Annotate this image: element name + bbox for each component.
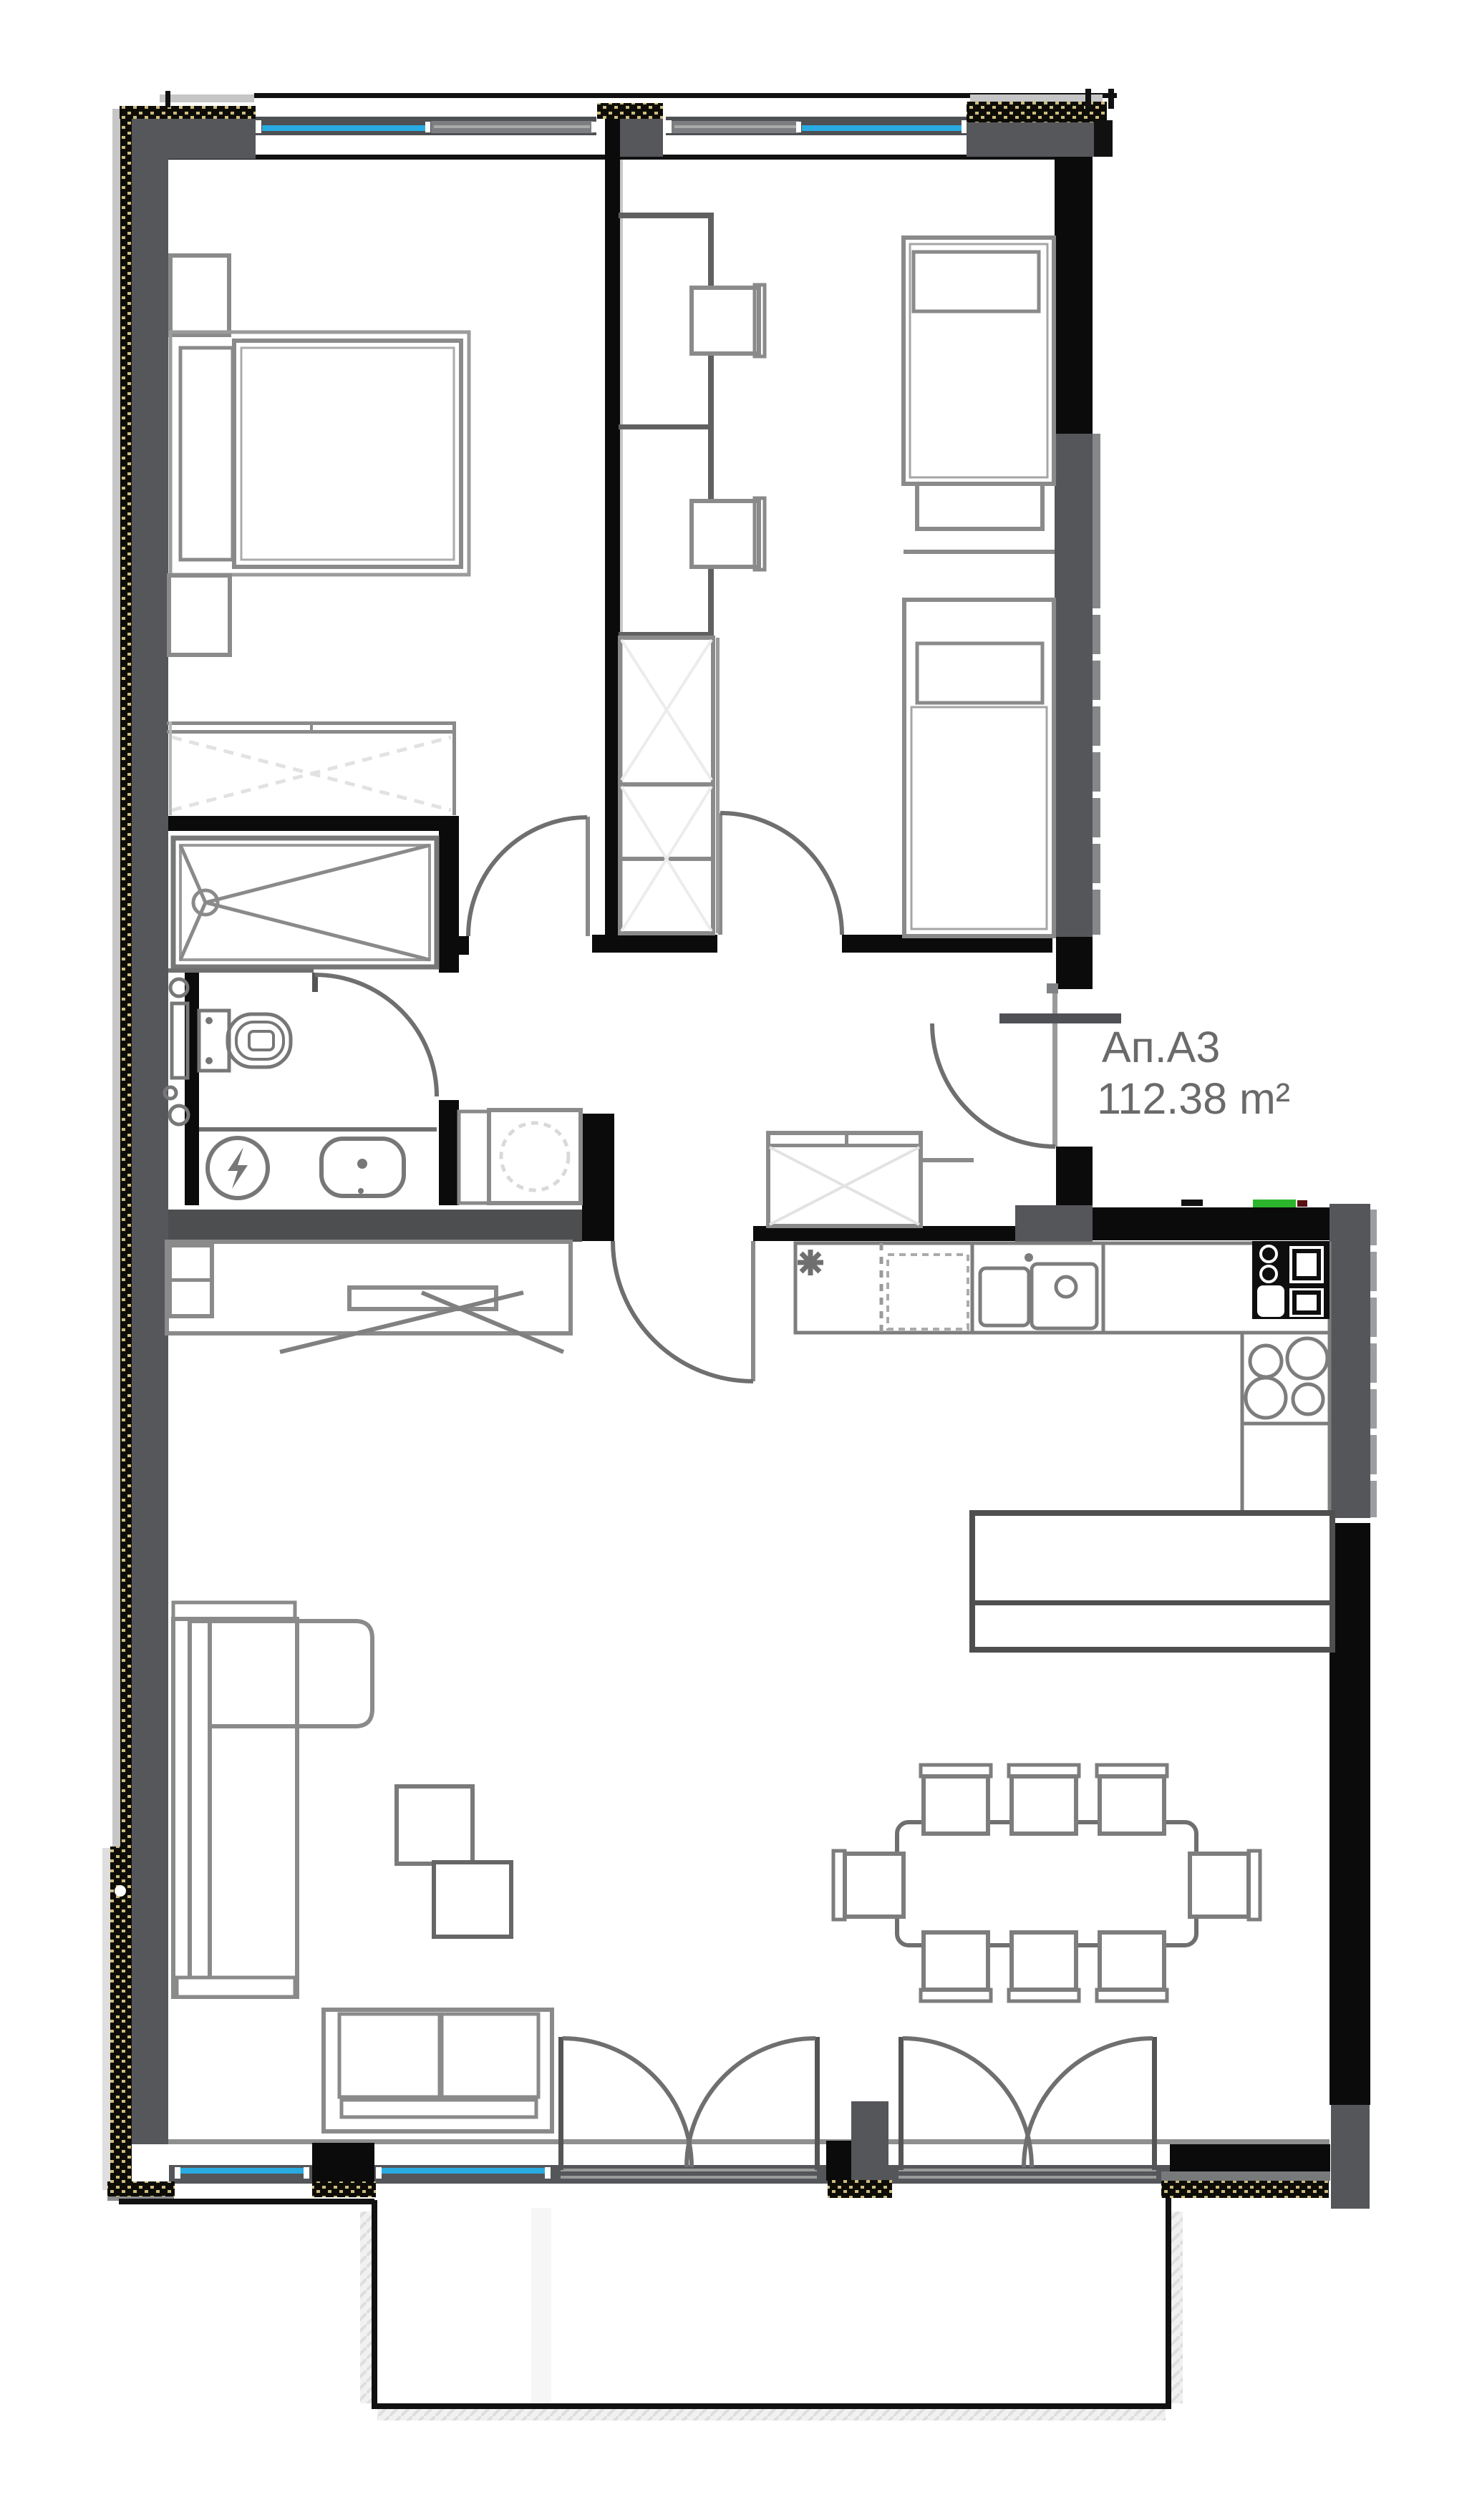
svg-text:112.38 m²: 112.38 m²	[1097, 1074, 1290, 1123]
svg-text:Ап.А3: Ап.А3	[1102, 1023, 1220, 1071]
